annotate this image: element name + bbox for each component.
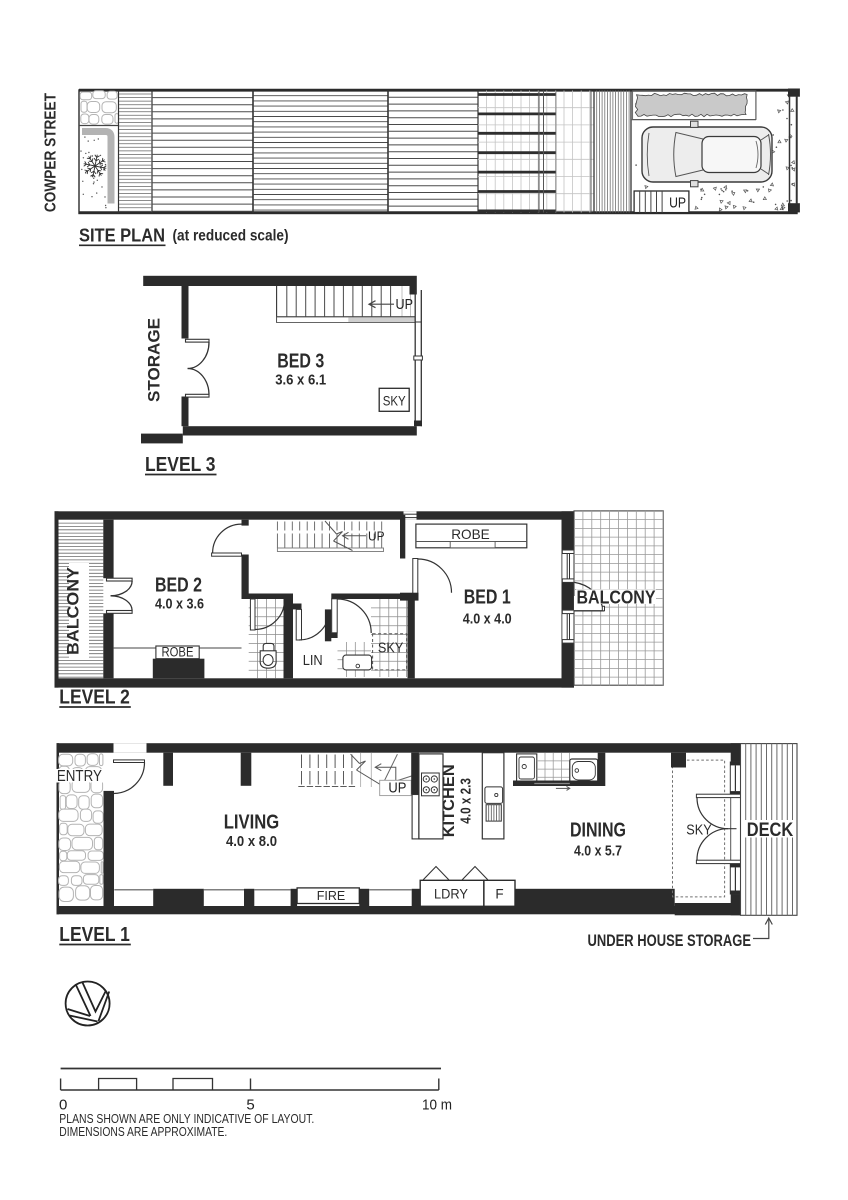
svg-text:UP: UP (669, 196, 686, 212)
svg-text:BED 2: BED 2 (155, 575, 202, 597)
svg-text:UP: UP (388, 779, 406, 796)
svg-text:DINING: DINING (570, 820, 626, 842)
svg-text:UP: UP (368, 529, 385, 544)
svg-text:SKY: SKY (383, 393, 407, 409)
svg-text:LIN: LIN (303, 653, 323, 669)
svg-text:SKY: SKY (686, 823, 712, 839)
svg-text:DIMENSIONS ARE APPROXIMATE.: DIMENSIONS ARE APPROXIMATE. (59, 1125, 227, 1139)
svg-text:LEVEL 1: LEVEL 1 (59, 924, 130, 946)
svg-text:3.6 x 6.1: 3.6 x 6.1 (275, 373, 326, 389)
svg-text:10 m: 10 m (422, 1097, 452, 1114)
svg-text:KITCHEN: KITCHEN (439, 764, 458, 837)
svg-text:LEVEL 3: LEVEL 3 (145, 454, 216, 476)
svg-text:ENTRY: ENTRY (57, 768, 102, 785)
svg-text:LIVING: LIVING (224, 812, 280, 834)
svg-text:BED 1: BED 1 (464, 587, 511, 609)
svg-text:PLANS SHOWN ARE ONLY INDICATIV: PLANS SHOWN ARE ONLY INDICATIVE OF LAYOU… (59, 1112, 314, 1126)
svg-text:SITE PLAN: SITE PLAN (79, 225, 165, 246)
svg-text:COWPER STREET: COWPER STREET (42, 93, 59, 212)
svg-text:UP: UP (396, 296, 414, 313)
svg-text:DECK: DECK (747, 820, 794, 841)
svg-text:0: 0 (59, 1097, 67, 1114)
svg-text:(at reduced scale): (at reduced scale) (173, 228, 289, 245)
svg-text:ROBE: ROBE (162, 645, 194, 660)
svg-text:ROBE: ROBE (451, 526, 490, 542)
svg-text:STORAGE: STORAGE (145, 318, 163, 402)
svg-text:UNDER HOUSE STORAGE: UNDER HOUSE STORAGE (588, 932, 752, 950)
svg-text:BALCONY: BALCONY (64, 566, 83, 655)
svg-text:BALCONY: BALCONY (577, 587, 656, 607)
svg-text:4.0 x 5.7: 4.0 x 5.7 (574, 844, 622, 860)
svg-text:SKY: SKY (378, 640, 403, 657)
svg-text:4.0 x 3.6: 4.0 x 3.6 (155, 597, 204, 613)
svg-text:LDRY: LDRY (434, 887, 468, 902)
svg-text:FIRE: FIRE (317, 889, 346, 903)
svg-text:F: F (495, 887, 503, 902)
svg-text:4.0 x 2.3: 4.0 x 2.3 (458, 778, 474, 824)
svg-text:4.0 x 8.0: 4.0 x 8.0 (226, 834, 277, 850)
svg-text:LEVEL 2: LEVEL 2 (59, 687, 130, 709)
svg-text:5: 5 (246, 1097, 254, 1114)
svg-text:4.0 x 4.0: 4.0 x 4.0 (463, 612, 512, 628)
svg-text:BED 3: BED 3 (277, 351, 324, 373)
